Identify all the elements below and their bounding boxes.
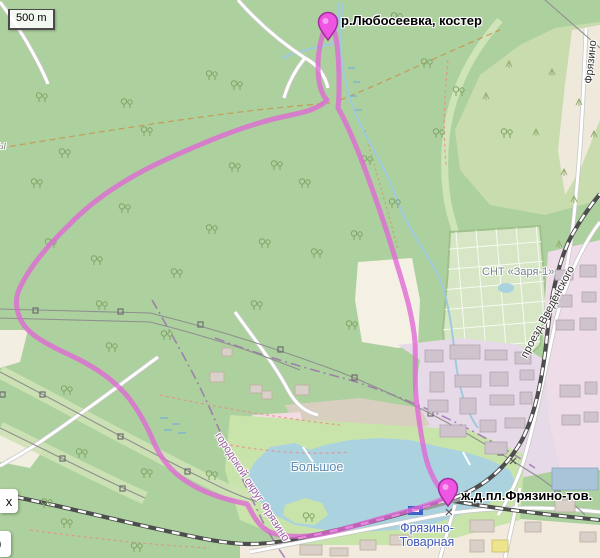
edge-waypoint-box-2[interactable]: 0 — [0, 531, 11, 557]
map-canvas[interactable]: 500 m р.Любосеевка, костер ж.д.пл.Фрязин… — [0, 0, 600, 558]
scale-label: 500 m — [16, 12, 47, 24]
edge-waypoint-box-1[interactable]: х — [0, 489, 18, 513]
map-layers — [0, 0, 600, 558]
building-yellow — [492, 540, 508, 552]
industrial-pond — [552, 468, 598, 490]
scale-control: 500 m — [8, 9, 55, 30]
